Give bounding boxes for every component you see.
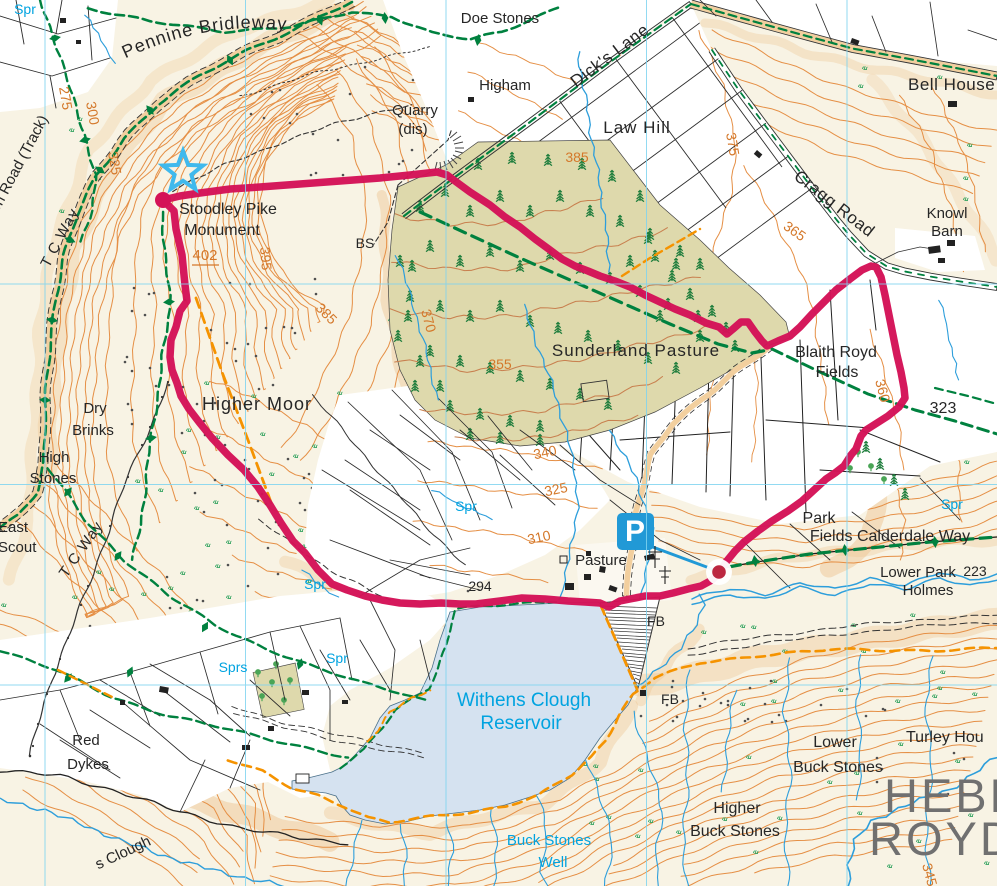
svg-text:Turley Hou: Turley Hou: [906, 729, 984, 746]
svg-text:Fields Calderdale Way: Fields Calderdale Way: [810, 528, 970, 545]
svg-text:High: High: [39, 449, 70, 466]
svg-text:FB: FB: [661, 691, 679, 707]
svg-text:Higher Moor: Higher Moor: [202, 394, 312, 414]
svg-text:Doe Stones: Doe Stones: [461, 10, 539, 27]
svg-text:Knowl: Knowl: [927, 205, 968, 222]
svg-text:Higher: Higher: [713, 800, 761, 817]
svg-text:Well: Well: [539, 854, 568, 871]
svg-text:385: 385: [565, 149, 589, 165]
svg-text:FB: FB: [647, 613, 665, 629]
svg-text:Spr: Spr: [304, 576, 326, 592]
svg-text:Buck Stones: Buck Stones: [507, 832, 591, 849]
svg-text:Pasture: Pasture: [575, 552, 627, 569]
svg-text:Monument: Monument: [184, 222, 260, 239]
svg-text:Park: Park: [803, 510, 837, 527]
svg-text:Scout: Scout: [0, 539, 37, 556]
svg-text:Barn: Barn: [931, 223, 963, 240]
svg-text:ROYD: ROYD: [869, 812, 997, 865]
svg-text:Lower: Lower: [813, 734, 857, 751]
svg-text:Reservoir: Reservoir: [480, 713, 562, 734]
svg-text:Spr: Spr: [326, 650, 348, 666]
svg-text:(dis): (dis): [398, 121, 427, 138]
svg-text:294: 294: [468, 578, 492, 594]
svg-text:Fields: Fields: [816, 364, 859, 381]
svg-text:Stoodley Pike: Stoodley Pike: [179, 201, 277, 218]
svg-text:Holmes: Holmes: [903, 582, 954, 599]
svg-text:323: 323: [930, 400, 957, 417]
svg-text:Dry: Dry: [83, 400, 107, 417]
svg-text:Buck Stones: Buck Stones: [793, 759, 883, 776]
svg-text:East: East: [0, 519, 29, 536]
svg-text:Law Hill: Law Hill: [603, 118, 671, 137]
svg-text:Stones: Stones: [30, 470, 77, 487]
svg-text:Sprs: Sprs: [219, 659, 248, 675]
svg-text:223: 223: [963, 563, 987, 579]
svg-text:Sunderland Pasture: Sunderland Pasture: [552, 341, 720, 360]
svg-text:Lower Park: Lower Park: [880, 564, 956, 581]
svg-text:Higham: Higham: [479, 77, 531, 94]
svg-text:Withens Clough: Withens Clough: [457, 690, 591, 711]
svg-text:BS: BS: [356, 235, 375, 251]
svg-text:Buck Stones: Buck Stones: [690, 823, 780, 840]
svg-text:Spr: Spr: [14, 1, 36, 17]
svg-text:Dykes: Dykes: [67, 756, 109, 773]
svg-text:355: 355: [488, 356, 512, 372]
svg-text:Blaith Royd: Blaith Royd: [795, 344, 877, 361]
svg-text:Spr: Spr: [455, 498, 477, 514]
svg-text:Brinks: Brinks: [72, 422, 114, 439]
svg-text:402: 402: [192, 247, 217, 264]
svg-text:P: P: [625, 515, 645, 548]
svg-text:Red: Red: [72, 732, 100, 749]
svg-text:Spr: Spr: [941, 496, 963, 512]
svg-text:Bell House: Bell House: [908, 75, 995, 94]
svg-text:395: 395: [257, 246, 275, 271]
svg-text:Quarry: Quarry: [392, 102, 438, 119]
